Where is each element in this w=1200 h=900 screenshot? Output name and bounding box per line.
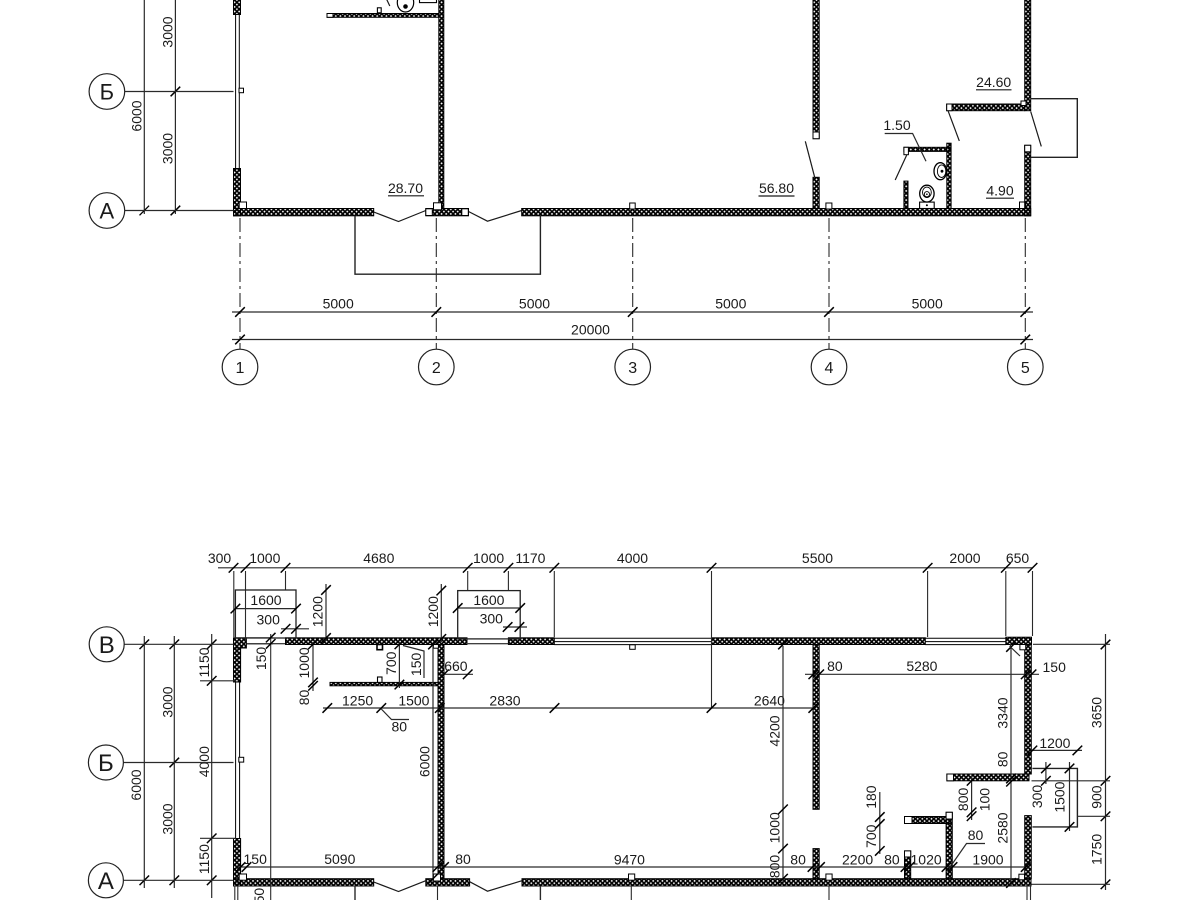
svg-text:28.70: 28.70 [388, 180, 423, 196]
svg-text:3: 3 [628, 360, 637, 377]
svg-text:3000: 3000 [160, 16, 176, 47]
svg-text:5500: 5500 [802, 550, 833, 566]
svg-text:2830: 2830 [489, 692, 520, 708]
svg-text:5280: 5280 [906, 658, 937, 674]
svg-text:6000: 6000 [416, 746, 432, 777]
svg-text:1900: 1900 [972, 851, 1003, 867]
svg-text:1200: 1200 [310, 596, 326, 627]
svg-text:150: 150 [251, 888, 267, 900]
svg-text:5090: 5090 [324, 851, 355, 867]
svg-text:650: 650 [1006, 550, 1030, 566]
svg-text:1000: 1000 [296, 647, 312, 678]
svg-text:4000: 4000 [196, 746, 212, 777]
svg-text:150: 150 [244, 851, 268, 867]
svg-text:1.50: 1.50 [883, 117, 910, 133]
svg-text:5000: 5000 [912, 296, 943, 312]
svg-text:4.90: 4.90 [986, 183, 1013, 199]
svg-text:80: 80 [827, 658, 843, 674]
svg-text:5000: 5000 [519, 296, 550, 312]
svg-text:А: А [98, 868, 114, 895]
svg-text:80: 80 [455, 851, 471, 867]
svg-text:4000: 4000 [617, 550, 648, 566]
svg-text:300: 300 [257, 612, 281, 628]
svg-text:800: 800 [767, 855, 783, 879]
svg-text:Б: Б [98, 750, 114, 777]
svg-text:В: В [99, 632, 115, 659]
svg-text:300: 300 [480, 611, 504, 627]
svg-text:5: 5 [1021, 360, 1030, 377]
svg-text:150: 150 [253, 647, 269, 671]
svg-text:24.60: 24.60 [976, 74, 1011, 90]
svg-text:300: 300 [208, 550, 232, 566]
svg-text:56.80: 56.80 [759, 180, 794, 196]
svg-text:3000: 3000 [160, 133, 176, 164]
svg-text:5000: 5000 [323, 296, 354, 312]
svg-text:6000: 6000 [128, 769, 144, 800]
svg-text:150: 150 [1043, 659, 1067, 675]
svg-text:2580: 2580 [994, 812, 1010, 843]
svg-text:4200: 4200 [767, 715, 783, 746]
svg-text:80: 80 [968, 827, 984, 843]
svg-text:700: 700 [383, 651, 399, 675]
svg-text:80: 80 [884, 851, 900, 867]
svg-text:1150: 1150 [196, 844, 212, 874]
svg-text:1000: 1000 [767, 812, 783, 843]
svg-text:100: 100 [977, 788, 993, 812]
svg-text:2640: 2640 [754, 692, 785, 708]
svg-text:1600: 1600 [473, 592, 504, 608]
svg-text:1150: 1150 [196, 647, 212, 677]
svg-text:2000: 2000 [949, 550, 980, 566]
svg-text:20000: 20000 [571, 322, 610, 338]
svg-text:3000: 3000 [159, 803, 175, 834]
svg-text:4680: 4680 [363, 550, 394, 566]
svg-text:1600: 1600 [250, 592, 281, 608]
svg-text:80: 80 [296, 690, 312, 706]
svg-text:3650: 3650 [1089, 697, 1105, 728]
svg-text:80: 80 [392, 719, 408, 735]
svg-text:1170: 1170 [515, 550, 545, 566]
svg-text:2200: 2200 [842, 851, 873, 867]
svg-text:80: 80 [790, 851, 806, 867]
svg-text:1250: 1250 [342, 692, 373, 708]
svg-text:660: 660 [444, 658, 468, 674]
svg-text:9470: 9470 [614, 851, 645, 867]
svg-text:1020: 1020 [911, 851, 942, 867]
svg-text:2: 2 [432, 360, 441, 377]
svg-text:1200: 1200 [1039, 735, 1070, 751]
svg-text:5000: 5000 [715, 296, 746, 312]
svg-text:800: 800 [955, 788, 971, 812]
svg-text:1500: 1500 [398, 692, 429, 708]
svg-text:Б: Б [100, 79, 114, 104]
svg-text:3340: 3340 [994, 697, 1010, 728]
svg-text:180: 180 [863, 785, 879, 809]
svg-text:А: А [100, 198, 115, 223]
svg-text:3000: 3000 [159, 686, 175, 717]
svg-text:6000: 6000 [129, 100, 145, 131]
svg-text:700: 700 [863, 824, 879, 848]
svg-text:1: 1 [236, 360, 245, 377]
svg-text:80: 80 [994, 751, 1010, 767]
svg-text:4: 4 [825, 360, 834, 377]
svg-text:1000: 1000 [473, 550, 504, 566]
svg-text:1500: 1500 [1051, 781, 1067, 812]
svg-text:900: 900 [1089, 785, 1105, 809]
svg-text:300: 300 [1029, 785, 1045, 809]
svg-text:1750: 1750 [1089, 834, 1105, 865]
svg-text:1000: 1000 [249, 550, 280, 566]
svg-text:150: 150 [408, 653, 424, 677]
svg-text:1200: 1200 [425, 596, 441, 627]
